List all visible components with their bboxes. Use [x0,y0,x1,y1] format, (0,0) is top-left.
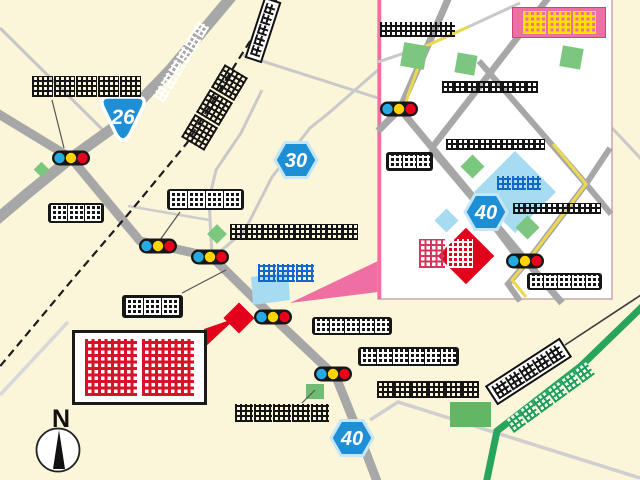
svg-text:40: 40 [340,428,363,450]
svg-text:N: N [52,405,70,433]
svg-text:30: 30 [285,150,307,172]
svg-text:26: 26 [110,106,135,129]
svg-text:40: 40 [474,202,497,224]
